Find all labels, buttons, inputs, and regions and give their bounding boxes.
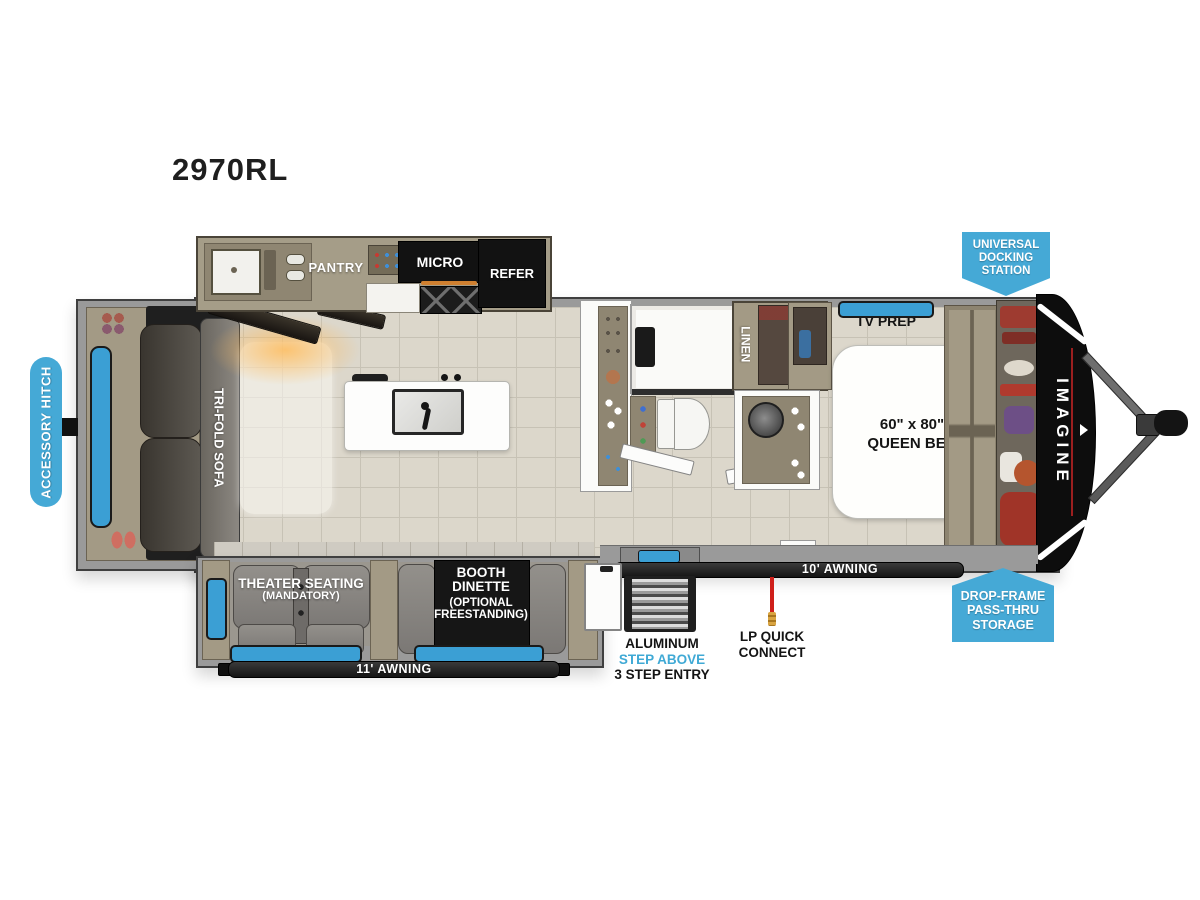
dinette-label-line3: (OPTIONAL [430, 597, 532, 609]
entry-step-line1: ALUMINUM [602, 636, 722, 652]
storage-badge-line1: DROP-FRAME [952, 589, 1054, 603]
entry-door-handle [600, 566, 613, 572]
wardrobe-left-item [799, 330, 811, 358]
floorplan-page: 2970RL TRI-FOLD SOFA PANTRY MICRO REFER [0, 0, 1200, 900]
awning-10-label: 10' AWNING [790, 563, 890, 576]
storage-badge-line3: STORAGE [952, 618, 1054, 632]
brand-logo: IMAGINE [1040, 330, 1084, 534]
dinette-label-line2: DINETTE [430, 580, 532, 594]
shower-sill [632, 389, 734, 395]
drop-frame-storage-badge: DROP-FRAME PASS-THRU STORAGE [952, 568, 1054, 642]
dinette-bench-right [528, 564, 566, 654]
stove-towel-bar [421, 281, 477, 285]
lp-connect-line [770, 577, 774, 613]
entry-step-label: ALUMINUM STEP ABOVE 3 STEP ENTRY [602, 636, 722, 683]
accessory-hitch-badge: ACCESSORY HITCH [30, 357, 62, 507]
dinette-label-line1: BOOTH [430, 566, 532, 580]
entry-steps-treads [632, 579, 688, 629]
stove [420, 286, 482, 314]
universal-docking-station-badge: UNIVERSAL DOCKING STATION [962, 232, 1050, 296]
dinette-label: BOOTH DINETTE (OPTIONAL FREESTANDING) [430, 566, 532, 621]
storage-item-purple [1004, 406, 1034, 434]
slide-interface-strip [214, 542, 594, 557]
drawer-pull-1 [286, 254, 305, 265]
storage-item-football [1004, 360, 1034, 376]
tongue-jack-handle [1154, 410, 1188, 436]
page-title: 2970RL [172, 152, 288, 188]
accessory-hitch-stub [62, 418, 78, 436]
entry-step-line2: STEP ABOVE [602, 652, 722, 668]
lp-connect-nozzle [768, 612, 776, 626]
drawer-pull-2 [286, 270, 305, 281]
shower-fixture [635, 327, 655, 367]
lp-connect-label: LP QUICK CONNECT [736, 629, 808, 660]
sofa-cushion-bottom [140, 438, 202, 552]
docking-badge-line3: STATION [962, 265, 1050, 278]
bedroom-window-top [838, 301, 934, 318]
island-knob-2 [454, 374, 461, 381]
entry-step-line3: 3 STEP ENTRY [602, 667, 722, 683]
counter-sink-2 [366, 283, 420, 313]
brand-underline [1071, 348, 1073, 516]
sandals-bottom [110, 528, 136, 552]
microwave: MICRO [398, 241, 482, 283]
docking-badge-line2: DOCKING [962, 252, 1050, 265]
sandals-top [100, 312, 126, 334]
refrigerator: REFER [478, 239, 546, 308]
storage-item-car [1000, 384, 1040, 396]
bedroom-wardrobe-right [944, 305, 1000, 557]
lp-connect-line2: CONNECT [736, 645, 808, 661]
storage-item-red-1 [1000, 306, 1038, 328]
tongue-bar-lower [1088, 429, 1159, 504]
linen-label: LINEN [732, 305, 758, 383]
pantry-label: PANTRY [306, 261, 366, 275]
theater-label-line2: (MANDATORY) [226, 591, 376, 603]
slide-divider [370, 560, 398, 660]
docking-badge-line1: UNIVERSAL [962, 239, 1050, 252]
sofa-cushion-top [140, 324, 202, 438]
lp-connect-line1: LP QUICK [736, 629, 808, 645]
island-knob-1 [441, 374, 448, 381]
cabinet-divider [264, 250, 276, 290]
vanity-sink [748, 402, 784, 438]
brand-arrow-icon [1080, 424, 1088, 436]
rear-window [90, 346, 112, 528]
storage-item-red-2 [1002, 332, 1036, 344]
storage-item-sleeping-bag [1000, 492, 1040, 546]
kitchen-sink-drain [231, 267, 237, 273]
awning-11-rail: 11' AWNING [228, 661, 560, 678]
entry-door-open [584, 563, 622, 631]
dinette-label-line4: FREESTANDING) [430, 609, 532, 621]
slide-window-left [206, 578, 227, 640]
storage-badge-line2: PASS-THRU [952, 603, 1054, 617]
theater-label: THEATER SEATING (MANDATORY) [226, 577, 376, 603]
